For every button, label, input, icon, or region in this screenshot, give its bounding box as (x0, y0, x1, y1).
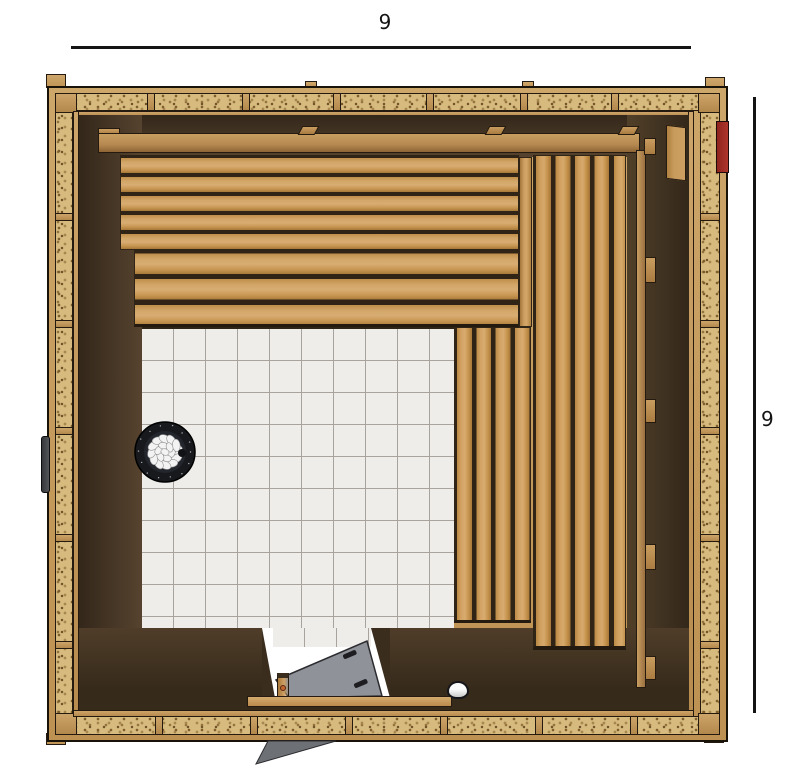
floor-drain-cap (447, 681, 469, 699)
door-glass-panel (276, 641, 382, 698)
door-swing-shadow (256, 741, 336, 764)
exterior-handle (41, 436, 50, 493)
sauna-floor-plan: 9 9 (0, 0, 793, 784)
door-sill (247, 696, 452, 707)
door-knob (280, 685, 286, 691)
junction-box (716, 121, 729, 173)
door-overlay (0, 0, 793, 784)
door-jamb-left (262, 628, 275, 698)
